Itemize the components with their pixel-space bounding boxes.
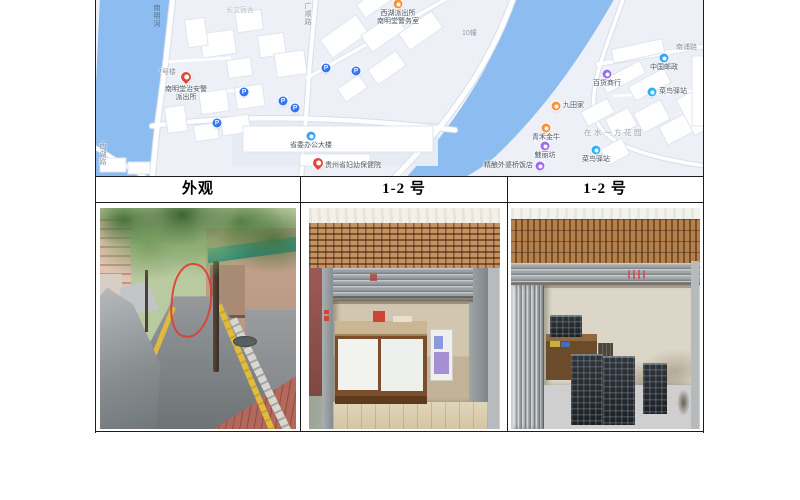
black-crate-stack-center — [603, 356, 635, 425]
map-parking-icon-6: P — [213, 119, 222, 128]
red-graffiti-mark — [628, 270, 645, 279]
ceiling-overhang — [309, 208, 500, 223]
map-poi-waipoqiao-restaurant-icon — [536, 162, 545, 171]
cabinet-blue-sticker — [434, 336, 444, 349]
photo-shop-counter — [309, 208, 500, 429]
blue-item-on-desk — [561, 342, 570, 348]
photo-cell-exterior — [96, 203, 300, 431]
map-poi-nanmingtang-police-label: 南明堂治安警派出所 — [165, 86, 207, 102]
brick-lattice-band — [309, 223, 500, 267]
photo-shop-crates — [511, 208, 700, 429]
floor-smudge — [677, 389, 690, 416]
map-poi-jiutianjia-label: 九田家 — [563, 102, 584, 110]
folding-metal-gate — [513, 285, 543, 429]
map-poi-nanmingtang-police-icon — [179, 70, 193, 84]
map-poi-provincial-office-icon — [307, 132, 316, 141]
map-poi-maternity-hospital-label: 贵州省妇幼保健院 — [325, 162, 381, 170]
map-label-dormitory-area: 长文宿舍 — [226, 7, 254, 15]
map-poi-jiutianjia-icon — [552, 102, 561, 111]
red-tag-upper — [324, 310, 329, 314]
map-parking-icon-3: P — [291, 104, 300, 113]
photo-cell-unit-b — [507, 203, 702, 431]
counter-panel-right — [381, 339, 423, 391]
ceiling-overhang — [511, 208, 700, 219]
map-poi-cainiao-station-1-label: 菜鸟驿站 — [659, 88, 687, 96]
map-label-building-10: 10幢 — [462, 30, 477, 38]
table-photo-row — [96, 203, 703, 432]
photo-alley-exterior — [100, 208, 296, 429]
brick-lattice-band — [511, 219, 700, 263]
map-poi-meilifang-label: 魅丽坊 — [535, 152, 556, 160]
property-table: 南明河广顺路西湖路南浦路7号楼10幢长文宿舍在水一方花园南明堂治安警派出所西湖派… — [95, 0, 704, 433]
photo-cell-unit-a — [300, 203, 507, 431]
map-poi-provincial-office-label: 省委办公大楼 — [290, 142, 332, 150]
map-poi-waipoqiao-restaurant-label: 精酿外婆桥饭店 — [484, 162, 533, 170]
map-poi-meilifang-icon — [541, 142, 550, 151]
map-parking-icon-1: P — [240, 88, 249, 97]
counter-top — [335, 321, 427, 336]
map-label-zaishuiyifang-garden: 在水一方花园 — [584, 129, 644, 137]
cabinet-purple-sticker — [434, 352, 449, 374]
map-poi-qinghe-jinniu-icon — [542, 124, 551, 133]
map-poi-xihu-police-label: 西湖派出所南明堂警务室 — [377, 10, 419, 26]
map-poi-cainiao-station-2-label: 菜鸟驿站 — [582, 156, 610, 164]
tiled-floor — [333, 402, 488, 429]
document-page: 南明河广顺路西湖路南浦路7号楼10幢长文宿舍在水一方花园南明堂治安警派出所西湖派… — [0, 0, 800, 500]
header-unit-1-2-b: 1-2 号 — [507, 177, 702, 202]
map-poi-china-post-icon — [660, 54, 669, 63]
counter-panel-left — [338, 339, 378, 390]
map-parking-icon-2: P — [279, 97, 288, 106]
red-object-on-counter — [373, 311, 384, 322]
black-crate-stack-left — [571, 354, 603, 425]
map-label-guangshun-road: 广顺路 — [303, 2, 311, 26]
map-label-building-7: 7号楼 — [158, 69, 176, 77]
rolled-shutter — [511, 263, 700, 285]
map-poi-china-post-label: 中国邮政 — [650, 64, 678, 72]
red-tag-lower — [324, 316, 329, 320]
map-poi-cainiao-station-2-icon — [592, 146, 601, 155]
right-pillar — [691, 261, 700, 429]
map-poi-maternity-hospital-icon — [311, 156, 325, 170]
table-header-row: 外观 1-2 号 1-2 号 — [96, 176, 703, 203]
map-poi-xihu-police-icon — [394, 0, 403, 9]
location-map: 南明河广顺路西湖路南浦路7号楼10幢长文宿舍在水一方花园南明堂治安警派出所西湖派… — [96, 0, 703, 176]
header-exterior: 外观 — [96, 177, 300, 202]
map-label-xihu-road: 西湖路 — [98, 142, 106, 166]
map-poi-baihuo-shop-icon — [603, 70, 612, 79]
papers-on-counter — [393, 316, 412, 322]
crate-on-desk — [550, 315, 582, 337]
yellow-item-on-desk — [550, 341, 559, 348]
header-unit-1-2-a: 1-2 号 — [300, 177, 507, 202]
right-wall-edge — [488, 268, 499, 429]
counter-plinth — [335, 396, 427, 404]
map-parking-icon-5: P — [352, 67, 361, 76]
map-label-nanpu-road: 南浦路 — [676, 44, 697, 52]
shutter-rail-left — [322, 268, 333, 429]
maroon-side-wall — [309, 268, 322, 401]
map-label-nanming-river: 南明河 — [152, 4, 160, 28]
map-overlay: 南明河广顺路西湖路南浦路7号楼10幢长文宿舍在水一方花园南明堂治安警派出所西湖派… — [96, 0, 703, 176]
map-poi-baihuo-shop-label: 百货商行 — [593, 80, 621, 88]
shutter-red-stain — [370, 274, 378, 281]
black-crate-right — [643, 363, 668, 414]
map-poi-cainiao-station-1-icon — [648, 88, 657, 97]
map-parking-icon-4: P — [322, 64, 331, 73]
